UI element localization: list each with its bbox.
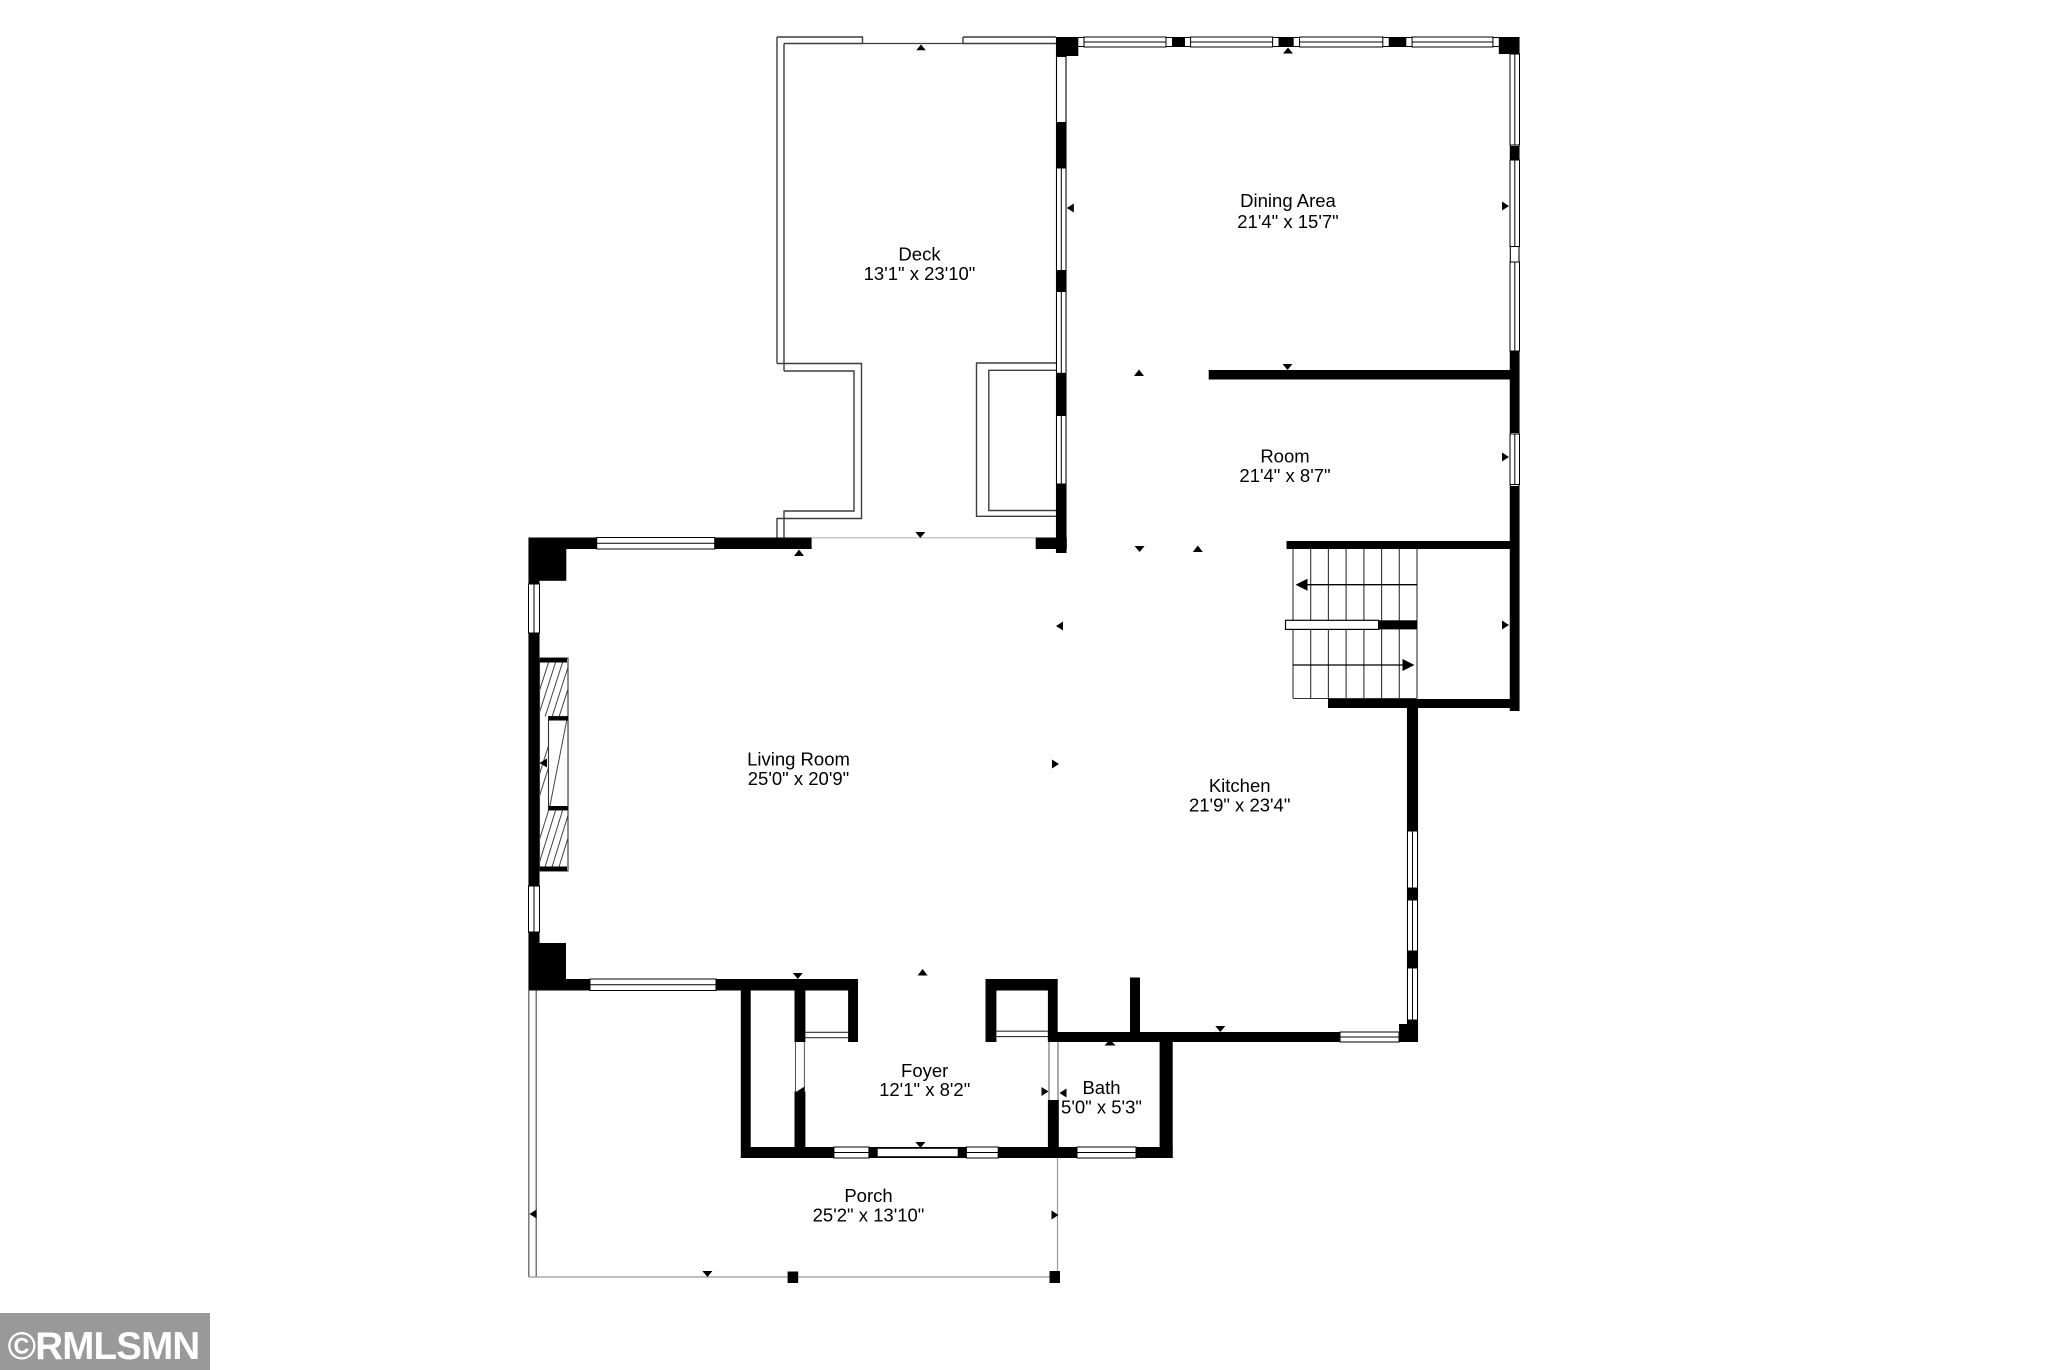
svg-text:©RMLSMN: ©RMLSMN bbox=[8, 1325, 200, 1368]
svg-text:Living Room25'0" x 20'9": Living Room25'0" x 20'9" bbox=[747, 749, 850, 790]
svg-text:Dining Area21'4" x 15'7": Dining Area21'4" x 15'7" bbox=[1237, 190, 1338, 232]
